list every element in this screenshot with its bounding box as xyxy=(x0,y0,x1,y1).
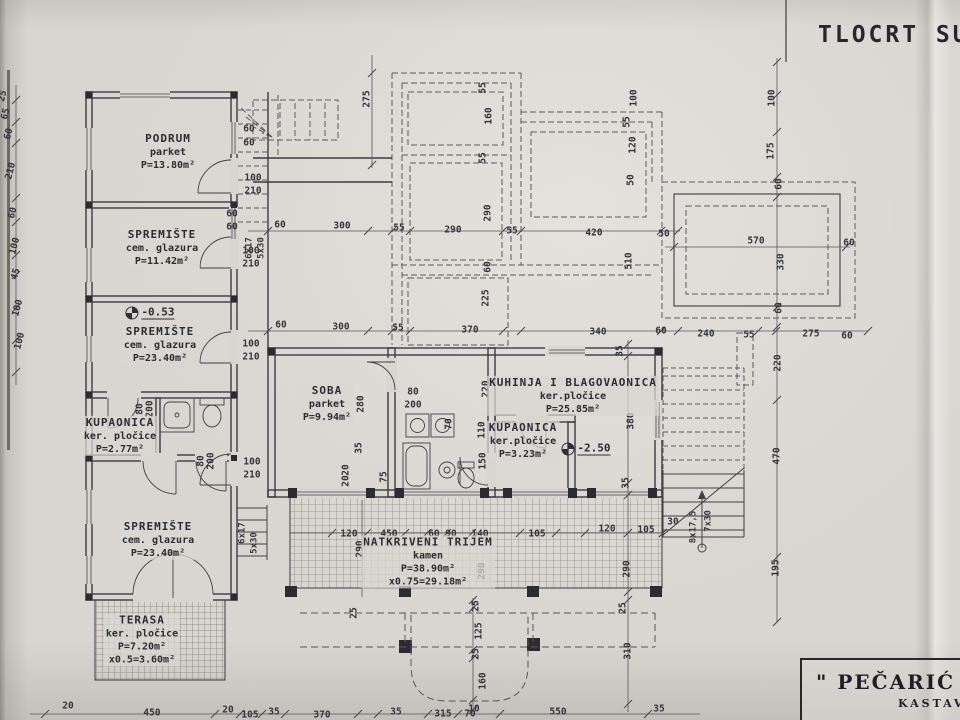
title-block-city: KASTAV xyxy=(898,698,960,709)
level-marker: -0.53 xyxy=(125,307,174,320)
level-symbol-icon xyxy=(561,443,574,456)
level-value: -2.50 xyxy=(577,443,610,456)
level-marker: -2.50 xyxy=(561,443,610,456)
level-symbol-icon xyxy=(125,307,138,320)
title-block-firm: " PEČARIĆ G xyxy=(816,672,960,692)
blueprint-sheet: 2755516055290602255510012050510100175603… xyxy=(0,0,960,720)
title-block: " PEČARIĆ G KASTAV xyxy=(800,658,960,720)
level-value: -0.53 xyxy=(141,307,174,320)
drawing-title: TLOCRT SUTER xyxy=(818,24,960,47)
level-markers-layer: -0.53 -2.50 xyxy=(0,0,960,720)
